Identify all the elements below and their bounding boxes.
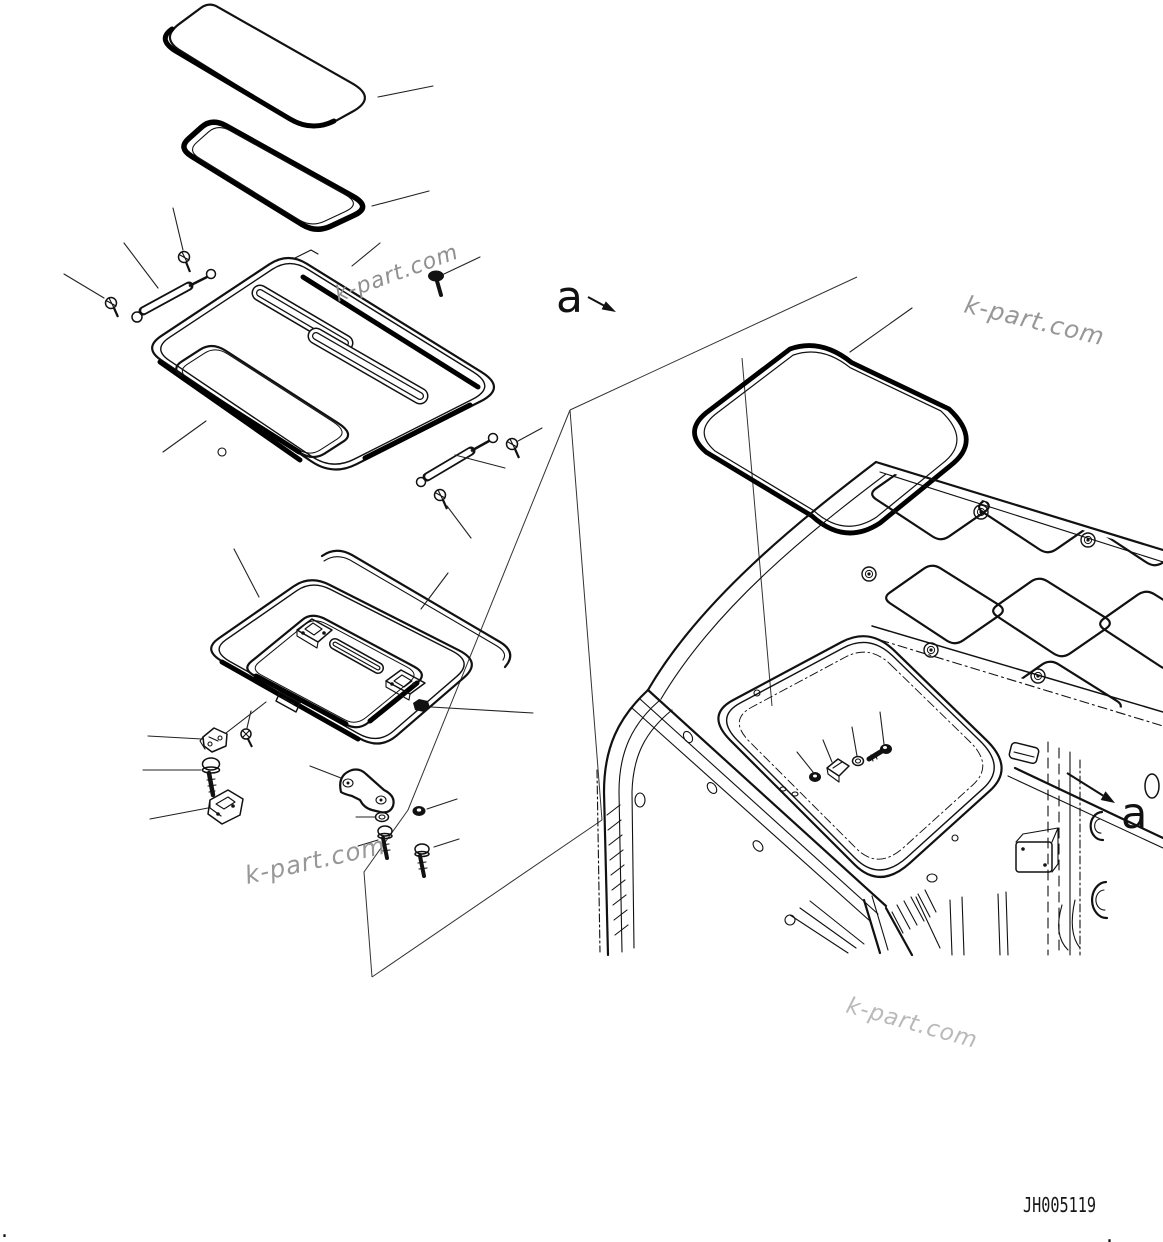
washer	[853, 757, 864, 766]
frame-slot	[260, 293, 345, 343]
page-dot-right: .	[1106, 1223, 1113, 1242]
flange-bolt	[143, 758, 220, 795]
watermark: k-part.com	[962, 290, 1108, 352]
cross-screw	[507, 428, 543, 458]
roof-opening	[682, 636, 1002, 882]
cross-screw	[64, 274, 118, 317]
watermark: k-part.com	[242, 831, 388, 890]
section-label-right: a	[1121, 789, 1147, 839]
drawing-number: JH005119	[1023, 1193, 1096, 1217]
grommet	[1091, 812, 1103, 840]
sunroof-glass-panel	[165, 5, 433, 127]
lock-bracket	[297, 619, 332, 648]
section-arrow-right: a	[1067, 773, 1147, 839]
grab-handle	[310, 766, 394, 812]
roof-seal-ring	[695, 308, 967, 533]
cross-screw	[173, 208, 190, 272]
gas-strut-right	[417, 434, 506, 487]
mounting-hardware	[797, 712, 892, 782]
cab-structure	[597, 308, 1163, 955]
a-pillar	[597, 690, 672, 955]
section-arrow-left: a	[556, 272, 616, 323]
section-boundary-lines	[364, 277, 857, 977]
frame-slot	[316, 336, 420, 396]
keeper-bracket	[150, 790, 243, 824]
rail-bracket	[1008, 742, 1039, 764]
glass-seal-gasket	[184, 122, 429, 229]
page-dot-left: .	[1, 1218, 8, 1242]
clip-bracket	[827, 759, 849, 782]
watermark: k-part.com	[843, 993, 980, 1054]
latch-assembly	[148, 702, 266, 752]
cross-screw	[435, 490, 472, 539]
parts-diagram-page: a a k-part.com k-part.com k-part.com k-p…	[0, 0, 1163, 1242]
door-handle-bracket	[1016, 828, 1058, 872]
hex-bolt	[869, 744, 892, 761]
exploded-parts-drawing: a a k-part.com k-part.com k-part.com k-p…	[0, 0, 1163, 1242]
cross-screw	[241, 711, 252, 747]
flange-bolt	[415, 839, 459, 876]
grommet	[1092, 882, 1107, 918]
washer	[356, 813, 389, 822]
door-frame	[790, 742, 1080, 955]
nut	[413, 799, 458, 816]
section-label-left: a	[556, 272, 583, 323]
roof-lattice	[872, 462, 1163, 739]
